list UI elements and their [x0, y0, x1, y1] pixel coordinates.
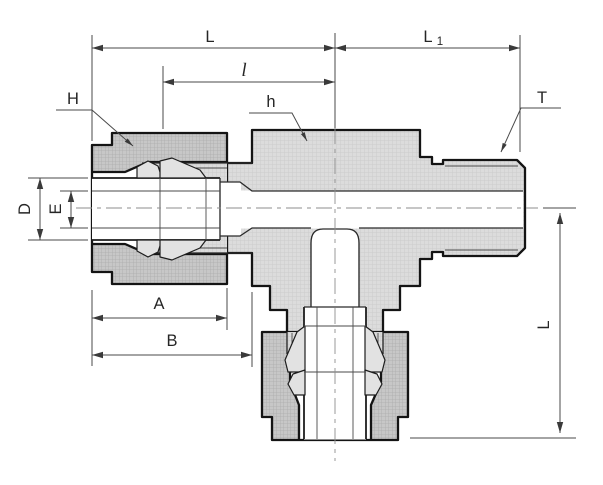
- label-L1-base: L: [423, 28, 432, 46]
- left-tube: [92, 178, 220, 240]
- label-l: l: [241, 60, 246, 81]
- label-T: T: [537, 89, 547, 107]
- label-L-top: L: [205, 28, 214, 46]
- label-B: B: [166, 332, 177, 350]
- fitting-drawing: L L 1 l H h T D E A B L: [0, 0, 603, 485]
- label-D: D: [16, 203, 34, 215]
- drawing-canvas: L L 1 l H h T D E A B L: [0, 0, 603, 485]
- label-H: H: [67, 90, 79, 108]
- label-E: E: [47, 203, 65, 214]
- label-L-vertical: L: [535, 320, 553, 329]
- label-h: h: [266, 93, 275, 111]
- label-L1-sub: 1: [437, 36, 443, 48]
- label-A: A: [153, 295, 164, 313]
